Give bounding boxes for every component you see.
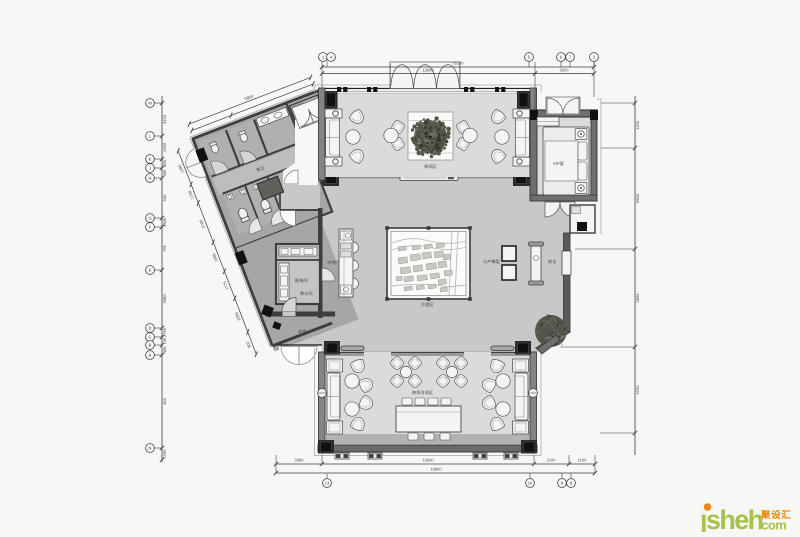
svg-text:A: A	[149, 352, 152, 357]
svg-text:配电间: 配电间	[295, 278, 308, 283]
svg-text:940: 940	[162, 194, 167, 201]
svg-text:J: J	[149, 165, 151, 170]
svg-text:3080: 3080	[162, 294, 167, 304]
svg-text:6200: 6200	[635, 385, 640, 395]
svg-text:2165: 2165	[162, 449, 167, 459]
svg-text:16100: 16100	[452, 61, 464, 66]
svg-text:1360: 1360	[162, 142, 167, 152]
svg-text:445: 445	[162, 169, 167, 176]
svg-text:C: C	[149, 334, 152, 339]
svg-text:3150: 3150	[162, 114, 167, 124]
svg-text:B: B	[149, 342, 152, 347]
svg-text:2100: 2100	[547, 458, 557, 463]
svg-text:茶水间: 茶水间	[300, 291, 313, 296]
svg-text:9800: 9800	[635, 293, 640, 303]
svg-text:10: 10	[528, 480, 533, 485]
svg-text:K: K	[149, 156, 152, 161]
svg-text:走廊: 走廊	[298, 329, 306, 334]
svg-text:440: 440	[162, 346, 167, 353]
svg-text:1100: 1100	[578, 458, 587, 463]
svg-text:.com: .com	[758, 518, 786, 533]
svg-text:3500: 3500	[560, 68, 570, 73]
svg-text:H: H	[149, 175, 152, 180]
svg-text:D: D	[149, 325, 152, 330]
svg-text:16800: 16800	[430, 467, 442, 472]
svg-text:3795: 3795	[162, 327, 167, 337]
svg-text:3580: 3580	[295, 458, 305, 463]
svg-text:沙盘区: 沙盘区	[421, 302, 434, 307]
svg-text:6900: 6900	[635, 193, 640, 203]
svg-text:12600: 12600	[422, 458, 434, 463]
svg-text:745: 745	[162, 337, 167, 344]
svg-text:E: E	[149, 267, 152, 272]
svg-text:前台: 前台	[548, 259, 556, 264]
svg-text:商务洽谈区: 商务洽谈区	[412, 390, 433, 395]
svg-text:795: 795	[162, 244, 167, 251]
svg-text:1985: 1985	[162, 217, 167, 227]
svg-text:450: 450	[162, 397, 167, 404]
svg-text:13: 13	[325, 480, 330, 485]
svg-text:480: 480	[162, 159, 167, 166]
svg-text:1100: 1100	[635, 120, 640, 129]
svg-text:分户模型: 分户模型	[483, 259, 500, 264]
svg-text:M: M	[148, 100, 151, 105]
svg-text:水吧区: 水吧区	[327, 260, 340, 265]
svg-text:12600: 12600	[422, 68, 434, 73]
svg-text:VIP室: VIP室	[553, 161, 564, 166]
svg-text:N: N	[149, 445, 152, 450]
svg-text:G: G	[148, 215, 151, 220]
svg-text:休闲区: 休闲区	[424, 164, 437, 169]
